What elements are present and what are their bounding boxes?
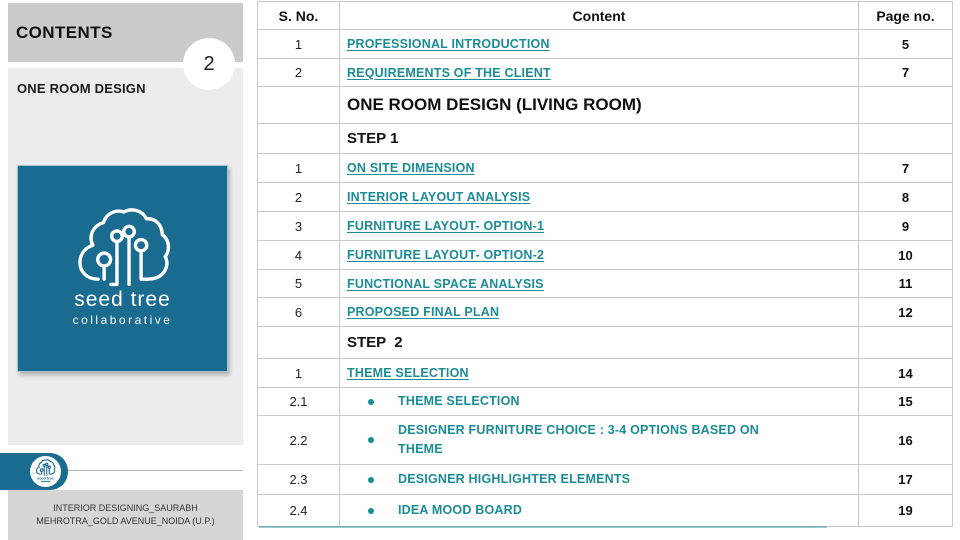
row-sno	[258, 327, 339, 358]
row-page: 7	[858, 154, 952, 182]
row-content-cell: INTERIOR LAYOUT ANALYSIS	[339, 183, 858, 211]
row-content-cell: STEP 1	[339, 124, 858, 153]
logo-subtext: collaborative	[18, 313, 227, 327]
bullet-text: DESIGNER HIGHLIGHTER ELEMENTS	[398, 470, 630, 489]
row-content-cell: PROFESSIONAL INTRODUCTION	[339, 30, 858, 58]
row-content-cell: THEME SELECTION	[339, 388, 858, 415]
row-sno: 4	[258, 241, 339, 269]
row-sno: 2.1	[258, 388, 339, 415]
section-heading: ONE ROOM DESIGN (LIVING ROOM)	[347, 95, 642, 115]
table-bottom-accent-line	[259, 526, 827, 528]
contents-title: CONTENTS	[16, 23, 113, 43]
seed-tree-mini-icon: seed tree	[30, 456, 61, 487]
footer-line-2: MEHROTRA_GOLD AVENUE_NOIDA (U.P.)	[8, 515, 243, 528]
table-row: 1 PROFESSIONAL INTRODUCTION 5	[258, 29, 952, 58]
footer-logo-badge: seed tree	[0, 453, 68, 490]
row-sno	[258, 87, 339, 123]
table-row: 2 REQUIREMENTS OF THE CLIENT 7	[258, 58, 952, 86]
row-content-cell: REQUIREMENTS OF THE CLIENT	[339, 59, 858, 86]
page-number-badge: 2	[183, 38, 235, 90]
row-sno: 2	[258, 183, 339, 211]
tree-icon	[64, 206, 182, 298]
toc-link[interactable]: FURNITURE LAYOUT- OPTION-1	[347, 219, 544, 233]
row-content-cell: PROPOSED FINAL PLAN	[339, 298, 858, 326]
footer-line-1: INTERIOR DESIGNING_SAURABH	[8, 502, 243, 515]
header-content: Content	[339, 2, 858, 29]
bullet-text: THEME SELECTION	[398, 392, 520, 411]
table-header-row: S. No. Content Page no.	[258, 2, 952, 29]
page-number: 2	[203, 53, 214, 76]
row-content-cell: IDEA MOOD BOARD	[339, 495, 858, 526]
row-sno: 2.4	[258, 495, 339, 526]
table-row: 2.3 DESIGNER HIGHLIGHTER ELEMENTS 17	[258, 464, 952, 494]
row-content-cell: ON SITE DIMENSION	[339, 154, 858, 182]
row-sno: 5	[258, 270, 339, 297]
row-page: 7	[858, 59, 952, 86]
toc-link[interactable]: REQUIREMENTS OF THE CLIENT	[347, 66, 551, 80]
row-content-cell: FURNITURE LAYOUT- OPTION-2	[339, 241, 858, 269]
row-content-cell: ONE ROOM DESIGN (LIVING ROOM)	[339, 87, 858, 123]
row-page: 16	[858, 416, 952, 464]
row-sno: 1	[258, 30, 339, 58]
toc-link[interactable]: ON SITE DIMENSION	[347, 161, 475, 175]
row-page	[858, 327, 952, 358]
row-content-cell: DESIGNER FURNITURE CHOICE : 3-4 OPTIONS …	[339, 416, 858, 464]
row-page: 19	[858, 495, 952, 526]
row-sno: 1	[258, 359, 339, 387]
table-row: 4 FURNITURE LAYOUT- OPTION-2 10	[258, 240, 952, 269]
row-page: 11	[858, 270, 952, 297]
row-content-cell: STEP 2	[339, 327, 858, 358]
row-page	[858, 124, 952, 153]
row-page: 17	[858, 465, 952, 494]
sidebar-body-block: ONE ROOM DESIGN seed tree collaborative	[8, 68, 243, 445]
bullet-icon	[368, 477, 374, 483]
bullet-text: DESIGNER FURNITURE CHOICE : 3-4 OPTIONS …	[398, 421, 778, 459]
row-page: 14	[858, 359, 952, 387]
toc-link[interactable]: FURNITURE LAYOUT- OPTION-2	[347, 248, 544, 262]
sidebar-divider-line	[68, 470, 243, 471]
row-content-cell: DESIGNER HIGHLIGHTER ELEMENTS	[339, 465, 858, 494]
slide-page: CONTENTS 2 ONE ROOM DESIGN seed tre	[0, 0, 960, 540]
toc-link[interactable]: THEME SELECTION	[347, 366, 469, 380]
row-content-cell: FURNITURE LAYOUT- OPTION-1	[339, 212, 858, 240]
row-page: 12	[858, 298, 952, 326]
bullet-icon	[368, 508, 374, 514]
row-page: 9	[858, 212, 952, 240]
table-row: 2.4 IDEA MOOD BOARD 19	[258, 494, 952, 526]
table-row: 5 FUNCTIONAL SPACE ANALYSIS 11	[258, 269, 952, 297]
toc-table: S. No. Content Page no. 1 PROFESSIONAL I…	[257, 1, 953, 527]
table-row: STEP 2	[258, 326, 952, 358]
row-content-cell: FUNCTIONAL SPACE ANALYSIS	[339, 270, 858, 297]
row-sno: 2	[258, 59, 339, 86]
row-page: 10	[858, 241, 952, 269]
step-heading: STEP 2	[347, 334, 403, 351]
row-page: 5	[858, 30, 952, 58]
toc-link[interactable]: PROPOSED FINAL PLAN	[347, 305, 499, 319]
row-page	[858, 87, 952, 123]
footer-text: INTERIOR DESIGNING_SAURABH MEHROTRA_GOLD…	[8, 490, 243, 540]
header-page: Page no.	[858, 2, 952, 29]
table-row: STEP 1	[258, 123, 952, 153]
table-row: 2.1 THEME SELECTION 15	[258, 387, 952, 415]
row-sno: 1	[258, 154, 339, 182]
row-sno: 6	[258, 298, 339, 326]
row-content-cell: THEME SELECTION	[339, 359, 858, 387]
seed-tree-logo-image: seed tree collaborative	[17, 165, 228, 372]
toc-link[interactable]: PROFESSIONAL INTRODUCTION	[347, 37, 550, 51]
toc-link[interactable]: FUNCTIONAL SPACE ANALYSIS	[347, 277, 544, 291]
table-row: 1 ON SITE DIMENSION 7	[258, 153, 952, 182]
table-row: 3 FURNITURE LAYOUT- OPTION-1 9	[258, 211, 952, 240]
bullet-icon	[368, 437, 374, 443]
toc-link[interactable]: INTERIOR LAYOUT ANALYSIS	[347, 190, 530, 204]
logo-wordmark: seed tree	[18, 288, 227, 312]
row-sno: 2.3	[258, 465, 339, 494]
table-row: 2.2 DESIGNER FURNITURE CHOICE : 3-4 OPTI…	[258, 415, 952, 464]
table-row: 6 PROPOSED FINAL PLAN 12	[258, 297, 952, 326]
row-sno: 2.2	[258, 416, 339, 464]
step-heading: STEP 1	[347, 130, 398, 147]
table-row: 2 INTERIOR LAYOUT ANALYSIS 8	[258, 182, 952, 211]
row-sno	[258, 124, 339, 153]
table-row: ONE ROOM DESIGN (LIVING ROOM)	[258, 86, 952, 123]
bullet-text: IDEA MOOD BOARD	[398, 501, 522, 520]
svg-text:seed tree: seed tree	[37, 477, 53, 481]
row-page: 15	[858, 388, 952, 415]
table-row: 1 THEME SELECTION 14	[258, 358, 952, 387]
sidebar-section-label: ONE ROOM DESIGN	[17, 81, 146, 96]
row-sno: 3	[258, 212, 339, 240]
bullet-icon	[368, 399, 374, 405]
header-sno: S. No.	[258, 2, 339, 29]
row-page: 8	[858, 183, 952, 211]
